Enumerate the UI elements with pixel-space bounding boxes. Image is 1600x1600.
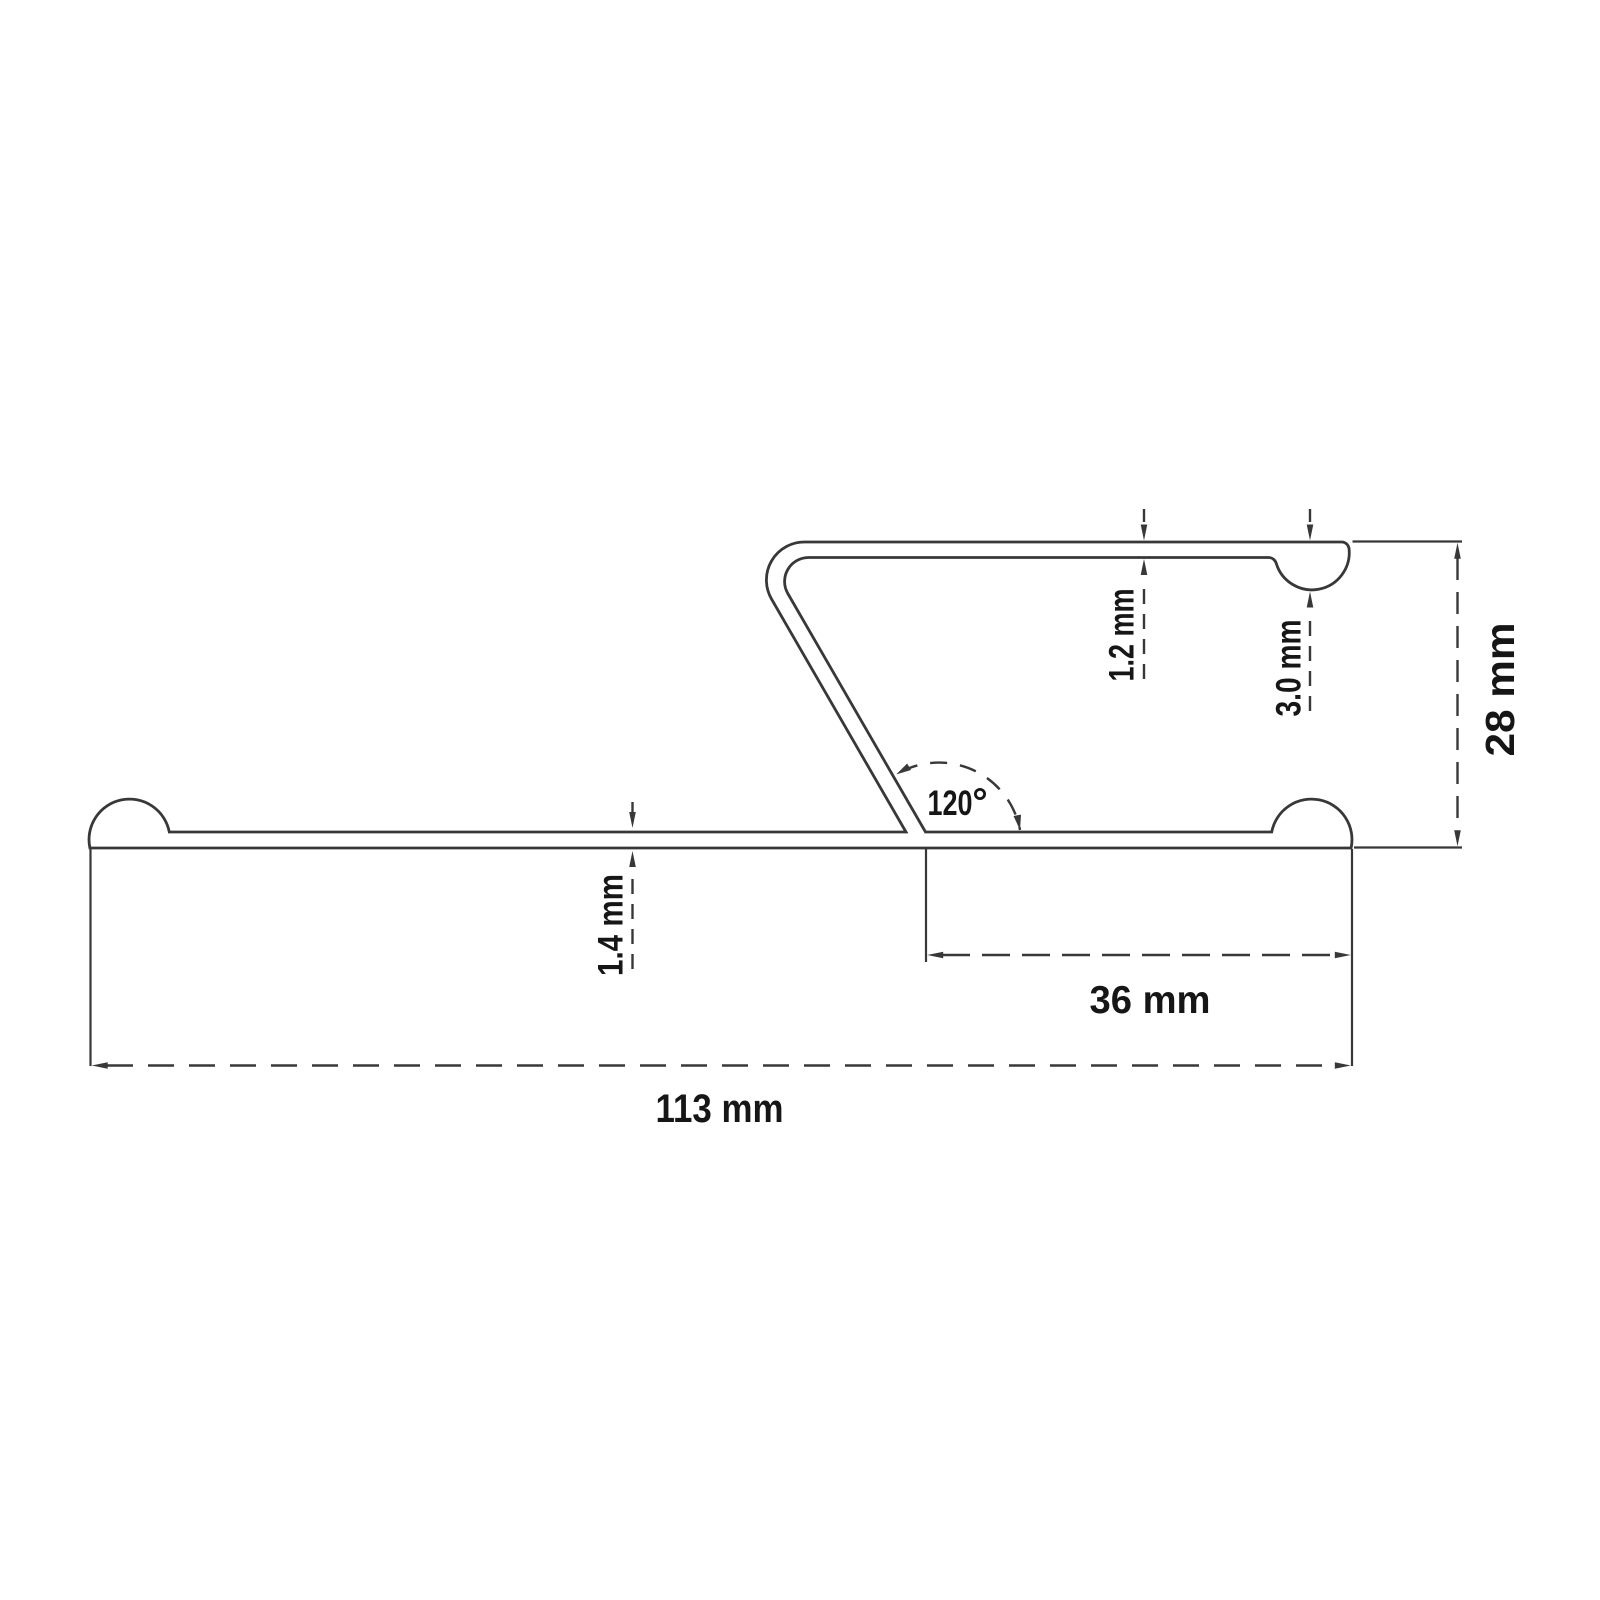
- svg-text:36 mm: 36 mm: [1090, 979, 1211, 1022]
- svg-text:1.2 mm: 1.2 mm: [1103, 589, 1142, 682]
- svg-text:1.4 mm: 1.4 mm: [592, 874, 631, 976]
- svg-text:120: 120: [928, 784, 973, 823]
- svg-text:113 mm: 113 mm: [656, 1087, 784, 1131]
- svg-text:28 mm: 28 mm: [1477, 623, 1523, 757]
- svg-text:3.0 mm: 3.0 mm: [1270, 620, 1309, 717]
